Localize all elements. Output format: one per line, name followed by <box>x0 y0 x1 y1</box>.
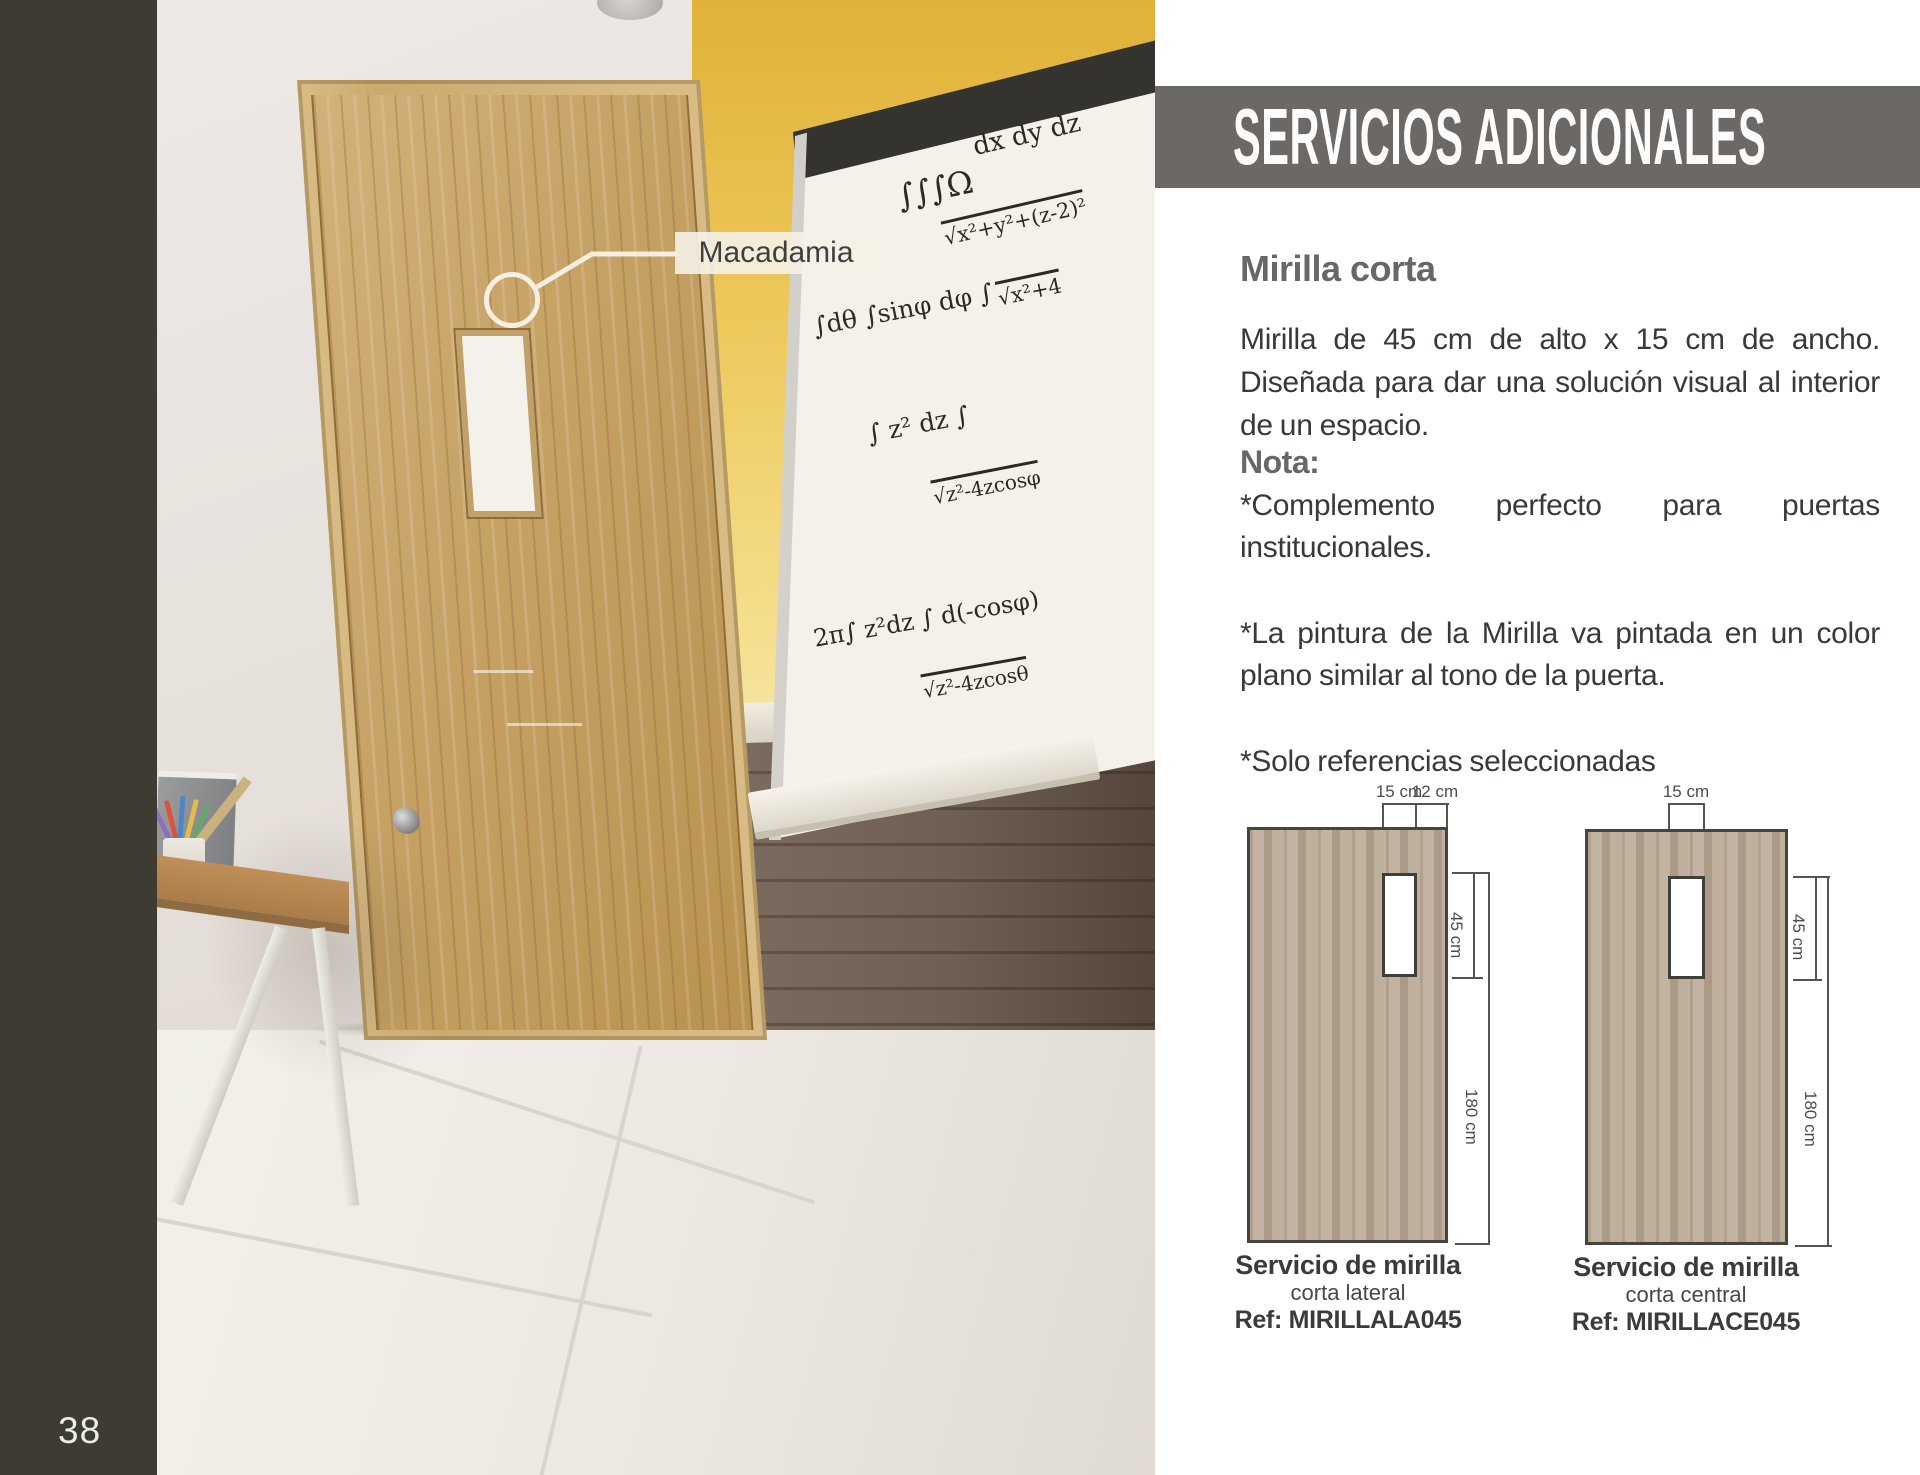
caption-ref: Ref: MIRILLACE045 <box>1566 1308 1806 1337</box>
formula: dx dy dz <box>970 108 1083 162</box>
formula: 2π∫ z²dz ∫ d(-cosφ) <box>811 585 1041 652</box>
left-margin-strip: 38 <box>0 0 157 1475</box>
formula: ∫ z² dz ∫ <box>865 401 971 449</box>
dim-label-window-width: 15 cm <box>1646 782 1726 802</box>
dim-label-window-height: 45 cm <box>1788 892 1808 982</box>
door-diagram <box>1247 827 1448 1243</box>
dimension-tick <box>1452 872 1490 874</box>
formula: √z²-4zcosθ <box>920 656 1030 703</box>
dimension-line <box>1815 876 1817 979</box>
formula: ∫∫∫Ω <box>894 162 977 215</box>
formula: √z²-4zcosφ <box>930 460 1042 509</box>
caption-subtitle: corta lateral <box>1228 1280 1468 1306</box>
section-title: Mirilla corta <box>1240 248 1436 290</box>
wood-mark <box>473 670 533 673</box>
banner-title: SERVICIOS ADICIONALES <box>1233 91 1766 183</box>
callout-circle <box>484 272 540 328</box>
notes-block: Nota: *Complemento perfecto para puertas… <box>1240 444 1880 783</box>
dimension-tick <box>1382 803 1384 827</box>
dim-label-door-height: 180 cm <box>1461 1062 1481 1172</box>
diagram-mirilla-lateral: 15 cm 12 cm 45 cm 180 cm Servicio de mir… <box>1230 780 1520 1350</box>
note-item: *La pintura de la Mirilla va pintada en … <box>1240 613 1880 697</box>
note-item: *Solo referencias seleccionadas <box>1240 741 1880 783</box>
dim-label-edge-offset: 12 cm <box>1400 782 1470 802</box>
caption-title: Servicio de mirilla <box>1228 1250 1468 1280</box>
caption-subtitle: corta central <box>1566 1282 1806 1308</box>
caption-title: Servicio de mirilla <box>1566 1252 1806 1282</box>
door-peephole-window <box>455 330 541 517</box>
wood-mark <box>507 723 582 726</box>
dimension-tick <box>1793 876 1830 878</box>
ceiling-lamp <box>597 0 663 20</box>
dimension-line <box>1827 876 1829 1245</box>
dimension-line <box>1488 872 1490 1243</box>
dimension-tick <box>1668 803 1670 829</box>
dimension-tick <box>1795 1245 1832 1247</box>
description-text: Mirilla de 45 cm de alto x 15 cm de anch… <box>1240 318 1880 447</box>
note-title: Nota: <box>1240 444 1880 481</box>
dimension-tick <box>1703 803 1705 829</box>
dimension-line <box>1668 803 1705 805</box>
catalog-page: 38 dx dy dz ∫∫∫Ω √x²+y² <box>0 0 1920 1475</box>
dimension-line <box>1473 872 1475 977</box>
diagram-caption: Servicio de mirilla corta central Ref: M… <box>1566 1252 1806 1337</box>
formula: ∫dθ ∫sinφ dφ ∫ <box>811 278 995 341</box>
diagram-caption: Servicio de mirilla corta lateral Ref: M… <box>1228 1250 1468 1335</box>
scene-photo: dx dy dz ∫∫∫Ω √x²+y²+(z-2)² ∫dθ ∫sinφ dφ… <box>157 0 1155 1475</box>
dimension-tick <box>1446 803 1448 827</box>
page-number: 38 <box>58 1410 101 1452</box>
section-banner: SERVICIOS ADICIONALES <box>1155 86 1920 188</box>
dim-label-window-height: 45 cm <box>1446 890 1466 980</box>
diagram-mirilla-central: 15 cm 45 cm 180 cm Servicio de mirilla c… <box>1560 780 1850 1350</box>
dimension-tick <box>1415 803 1417 827</box>
peephole-window-diagram <box>1382 873 1417 977</box>
dim-label-door-height: 180 cm <box>1800 1064 1820 1174</box>
note-item: *Complemento perfecto para puertas insti… <box>1240 485 1880 569</box>
whiteboard: dx dy dz ∫∫∫Ω √x²+y²+(z-2)² ∫dθ ∫sinφ dφ… <box>757 40 1155 840</box>
dimension-tick <box>1455 1243 1490 1245</box>
whiteboard-formulas: dx dy dz ∫∫∫Ω √x²+y²+(z-2)² ∫dθ ∫sinφ dφ… <box>757 40 1155 840</box>
formula: √x²+4 <box>995 269 1064 311</box>
peephole-window-diagram <box>1668 876 1705 979</box>
caption-ref: Ref: MIRILLALA045 <box>1228 1306 1468 1335</box>
finish-name-label: Macadamia <box>675 232 877 274</box>
